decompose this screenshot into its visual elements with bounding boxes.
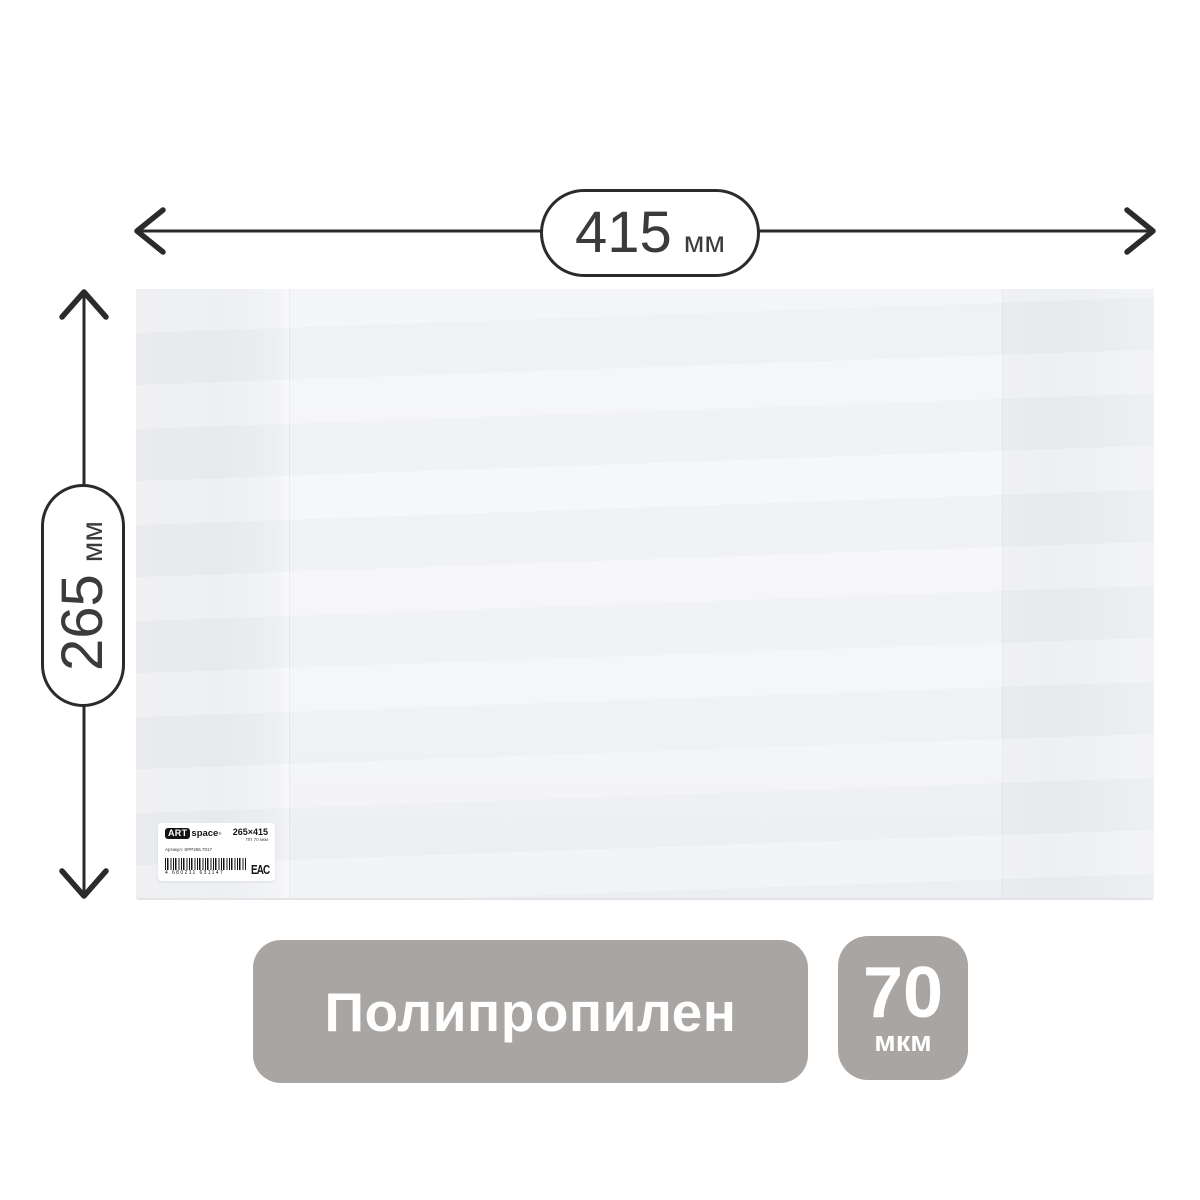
thickness-value: 70 <box>863 959 943 1027</box>
cover-main-panel <box>290 289 1002 898</box>
product-label: ARTspace® 265×415 ПП 70 мкм Артикул: SPP… <box>158 823 275 881</box>
thickness-unit: мкм <box>874 1028 931 1057</box>
height-dimension-pill: 265 мм <box>41 484 125 707</box>
label-size: 265×415 <box>233 828 268 837</box>
brand-space-text: space <box>191 829 218 839</box>
thickness-badge: 70 мкм <box>838 936 968 1080</box>
width-dimension-text: 415 мм <box>575 204 725 262</box>
height-unit: мм <box>78 520 108 561</box>
brand-art-mark: ART <box>165 828 190 839</box>
width-dimension-pill: 415 мм <box>540 189 760 277</box>
label-spec: ПП 70 мкм <box>233 838 268 843</box>
label-article: Артикул: SPP265.7017 <box>165 848 268 853</box>
label-bottom-row: 4 680211 631147 EAC <box>165 858 268 876</box>
brand-logo: ARTspace® <box>165 828 221 839</box>
material-badge: Полипропилен <box>253 940 808 1083</box>
product-image-canvas: ARTspace® 265×415 ПП 70 мкм Артикул: SPP… <box>0 0 1200 1200</box>
label-size-block: 265×415 ПП 70 мкм <box>233 828 268 843</box>
cover-flap-right <box>1002 289 1154 898</box>
width-value: 415 <box>575 204 672 262</box>
registered-mark: ® <box>218 832 221 836</box>
transparent-cover: ARTspace® 265×415 ПП 70 мкм Артикул: SPP… <box>136 289 1154 900</box>
height-value: 265 <box>54 574 112 671</box>
label-top-row: ARTspace® 265×415 ПП 70 мкм <box>165 828 268 843</box>
cover-flap-left <box>136 289 290 898</box>
width-unit: мм <box>684 228 725 258</box>
height-dimension-text: 265 мм <box>54 520 112 670</box>
barcode-digits: 4 680211 631147 <box>165 871 224 876</box>
barcode: 4 680211 631147 <box>165 858 247 876</box>
barcode-bars-icon <box>165 858 247 870</box>
eac-mark: EAC <box>251 863 269 876</box>
